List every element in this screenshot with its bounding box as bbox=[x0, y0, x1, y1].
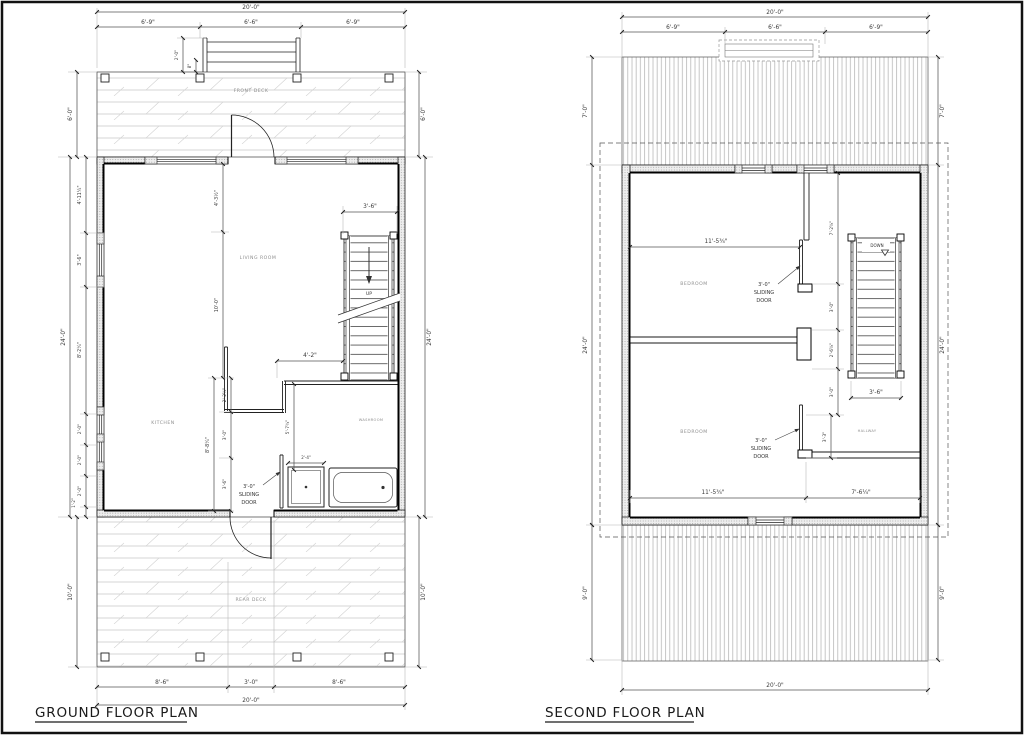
dim-label: 3'-0" bbox=[222, 430, 228, 440]
sf-stairs: DOWN bbox=[848, 234, 904, 378]
dim-label: 2'-0" bbox=[77, 455, 83, 465]
dim-label: 3'-6" bbox=[77, 254, 83, 265]
door-jamb bbox=[798, 284, 812, 292]
dim-label: 11'-5¾" bbox=[704, 239, 727, 245]
sf-window bbox=[748, 517, 792, 525]
room-label-rear-deck: REAR DECK bbox=[235, 597, 267, 603]
stair-direction-label: DOWN bbox=[870, 243, 883, 248]
dim-label: 4'-2" bbox=[303, 353, 317, 359]
dim-label: 3'-3" bbox=[822, 432, 828, 442]
dim-label: 2'-0" bbox=[77, 486, 83, 496]
room-label-hallway: HALLWAY bbox=[858, 429, 877, 433]
newel-post bbox=[341, 373, 348, 380]
sliding-door-label: SLIDING bbox=[239, 492, 259, 498]
dim-label: 7'-0" bbox=[940, 104, 946, 118]
second-floor-plan: DOWN 20'-0" bbox=[545, 10, 948, 722]
dim-label: 4'-11¼" bbox=[77, 185, 83, 204]
sliding-door-label: SLIDING bbox=[754, 290, 774, 296]
dim-label: 3'-0" bbox=[829, 387, 835, 397]
dim-label: 4'-3½" bbox=[213, 190, 220, 206]
gf-fixtures bbox=[288, 467, 397, 507]
gf-front-steps bbox=[203, 38, 300, 72]
dim-label: 9'-0" bbox=[583, 586, 589, 600]
dim-label: 24'-0" bbox=[583, 336, 589, 354]
deck-post bbox=[196, 653, 204, 661]
sf-skylight bbox=[719, 40, 819, 61]
bedroom-divider-wall bbox=[630, 337, 797, 343]
deck-post bbox=[293, 653, 301, 661]
hallway-wall bbox=[812, 452, 920, 458]
newel-post bbox=[897, 234, 904, 241]
sliding-door-label: DOOR bbox=[241, 500, 257, 506]
dim-label: 2'-0" bbox=[77, 424, 83, 434]
newel-post bbox=[848, 371, 855, 378]
room-label-front-deck: FRONT DECK bbox=[234, 88, 269, 94]
sf-top-sliding-door bbox=[800, 240, 803, 284]
gf-washroom-sliding-door bbox=[280, 455, 283, 508]
deck-post bbox=[385, 653, 393, 661]
dim-label: 20'-0" bbox=[242, 5, 260, 11]
leader-line bbox=[775, 429, 799, 440]
sliding-door-size-label: 3'-0" bbox=[243, 484, 255, 490]
deck-post bbox=[101, 74, 109, 82]
newel-post bbox=[897, 371, 904, 378]
dim-label: 8'-6" bbox=[155, 680, 169, 686]
deck-post bbox=[101, 653, 109, 661]
dim-label: 2'-6⅝" bbox=[829, 343, 835, 358]
dim-label: 7'-0" bbox=[583, 104, 589, 118]
sliding-door-size-label: 3'-0" bbox=[755, 438, 767, 444]
dim-label: 1'-2" bbox=[71, 498, 76, 508]
dim-label: 7'-6¼" bbox=[851, 490, 871, 496]
dim-label: 11'-5¾" bbox=[701, 490, 724, 496]
drawing-sheet: UP bbox=[0, 0, 1024, 735]
sf-room-labels: BEDROOM BEDROOM HALLWAY 3'-0" SLIDING DO… bbox=[680, 281, 877, 460]
dim-label: 8'-2¼" bbox=[77, 342, 83, 358]
dim-label: 24'-0" bbox=[940, 336, 946, 354]
floor-plan-drawing: UP bbox=[0, 0, 1024, 735]
ground-floor-plan: UP bbox=[35, 5, 433, 722]
sliding-door-size-label: 3'-0" bbox=[758, 282, 770, 288]
dim-label: 6'-6" bbox=[244, 20, 258, 26]
dim-label: 20'-0" bbox=[242, 698, 260, 704]
leader-line bbox=[778, 266, 800, 284]
sliding-door-label: DOOR bbox=[753, 454, 769, 460]
dim-label: 6'-0" bbox=[421, 107, 427, 121]
leader-line bbox=[263, 472, 280, 485]
deck-post bbox=[293, 74, 301, 82]
dim-label: 7'-2⅝" bbox=[829, 221, 835, 236]
ground-floor-title: GROUND FLOOR PLAN bbox=[35, 705, 199, 721]
sf-window bbox=[735, 165, 772, 173]
dim-label: 3'-0" bbox=[829, 302, 835, 312]
stair-direction-label: UP bbox=[366, 291, 372, 297]
bathtub-icon bbox=[329, 468, 397, 507]
dim-label: 3'-6" bbox=[222, 479, 228, 489]
dim-label: 9'-0" bbox=[940, 586, 946, 600]
gf-window bbox=[97, 233, 104, 287]
dim-label: 24'-0" bbox=[427, 328, 433, 346]
dim-label: 20'-0" bbox=[766, 10, 784, 16]
dim-label: 8" bbox=[187, 64, 192, 69]
newel-post bbox=[390, 373, 397, 380]
dim-label: 6'-9" bbox=[141, 20, 155, 26]
dim-label: 2'-4" bbox=[301, 455, 311, 460]
room-label-bedroom-1: BEDROOM bbox=[680, 281, 707, 287]
door-jamb bbox=[798, 450, 812, 458]
door-jamb bbox=[797, 328, 811, 360]
room-label-bedroom-2: BEDROOM bbox=[680, 429, 707, 435]
newel-post bbox=[390, 232, 397, 239]
dim-label: 3'-6" bbox=[363, 204, 377, 210]
sliding-door-label: DOOR bbox=[756, 298, 772, 304]
dim-label: 6'-0" bbox=[68, 107, 74, 121]
dim-label: 20'-0" bbox=[766, 683, 784, 689]
gf-window bbox=[145, 157, 228, 164]
room-label-washroom: WASHROOM bbox=[359, 418, 383, 422]
deck-post bbox=[196, 74, 204, 82]
dim-label: 2'-0" bbox=[174, 50, 180, 60]
dim-label: 10'-0" bbox=[68, 583, 74, 601]
dim-label: 8'-8¼" bbox=[205, 437, 211, 453]
sliding-door-label: SLIDING bbox=[751, 446, 771, 452]
gf-window bbox=[275, 157, 358, 164]
dim-label: 10'-0" bbox=[421, 583, 427, 601]
dim-label: 3'-6" bbox=[869, 390, 883, 396]
dim-label: 6'-6" bbox=[768, 25, 782, 31]
dim-label: 5'-7¾" bbox=[285, 420, 291, 435]
dim-label: 3'-0" bbox=[244, 680, 258, 686]
shower-icon bbox=[288, 467, 324, 507]
dim-label: 24'-0" bbox=[61, 328, 67, 346]
sf-window bbox=[797, 165, 834, 173]
gf-stairs: UP bbox=[338, 232, 400, 380]
gf-window bbox=[97, 407, 104, 470]
newel-post bbox=[848, 234, 855, 241]
dim-label: 8'-6" bbox=[332, 680, 346, 686]
sf-bottom-sliding-door bbox=[800, 405, 803, 450]
dim-label: 10'-0" bbox=[214, 298, 220, 312]
dim-label: 6'-9" bbox=[666, 25, 680, 31]
deck-post bbox=[385, 74, 393, 82]
room-label-kitchen: KITCHEN bbox=[151, 420, 174, 426]
room-label-living-room: LIVING ROOM bbox=[240, 255, 277, 261]
dim-label: 6'-9" bbox=[346, 20, 360, 26]
dim-label: 6'-9" bbox=[869, 25, 883, 31]
second-floor-title: SECOND FLOOR PLAN bbox=[545, 705, 706, 721]
dim-label: 2'-2¼" bbox=[222, 388, 228, 403]
newel-post bbox=[341, 232, 348, 239]
